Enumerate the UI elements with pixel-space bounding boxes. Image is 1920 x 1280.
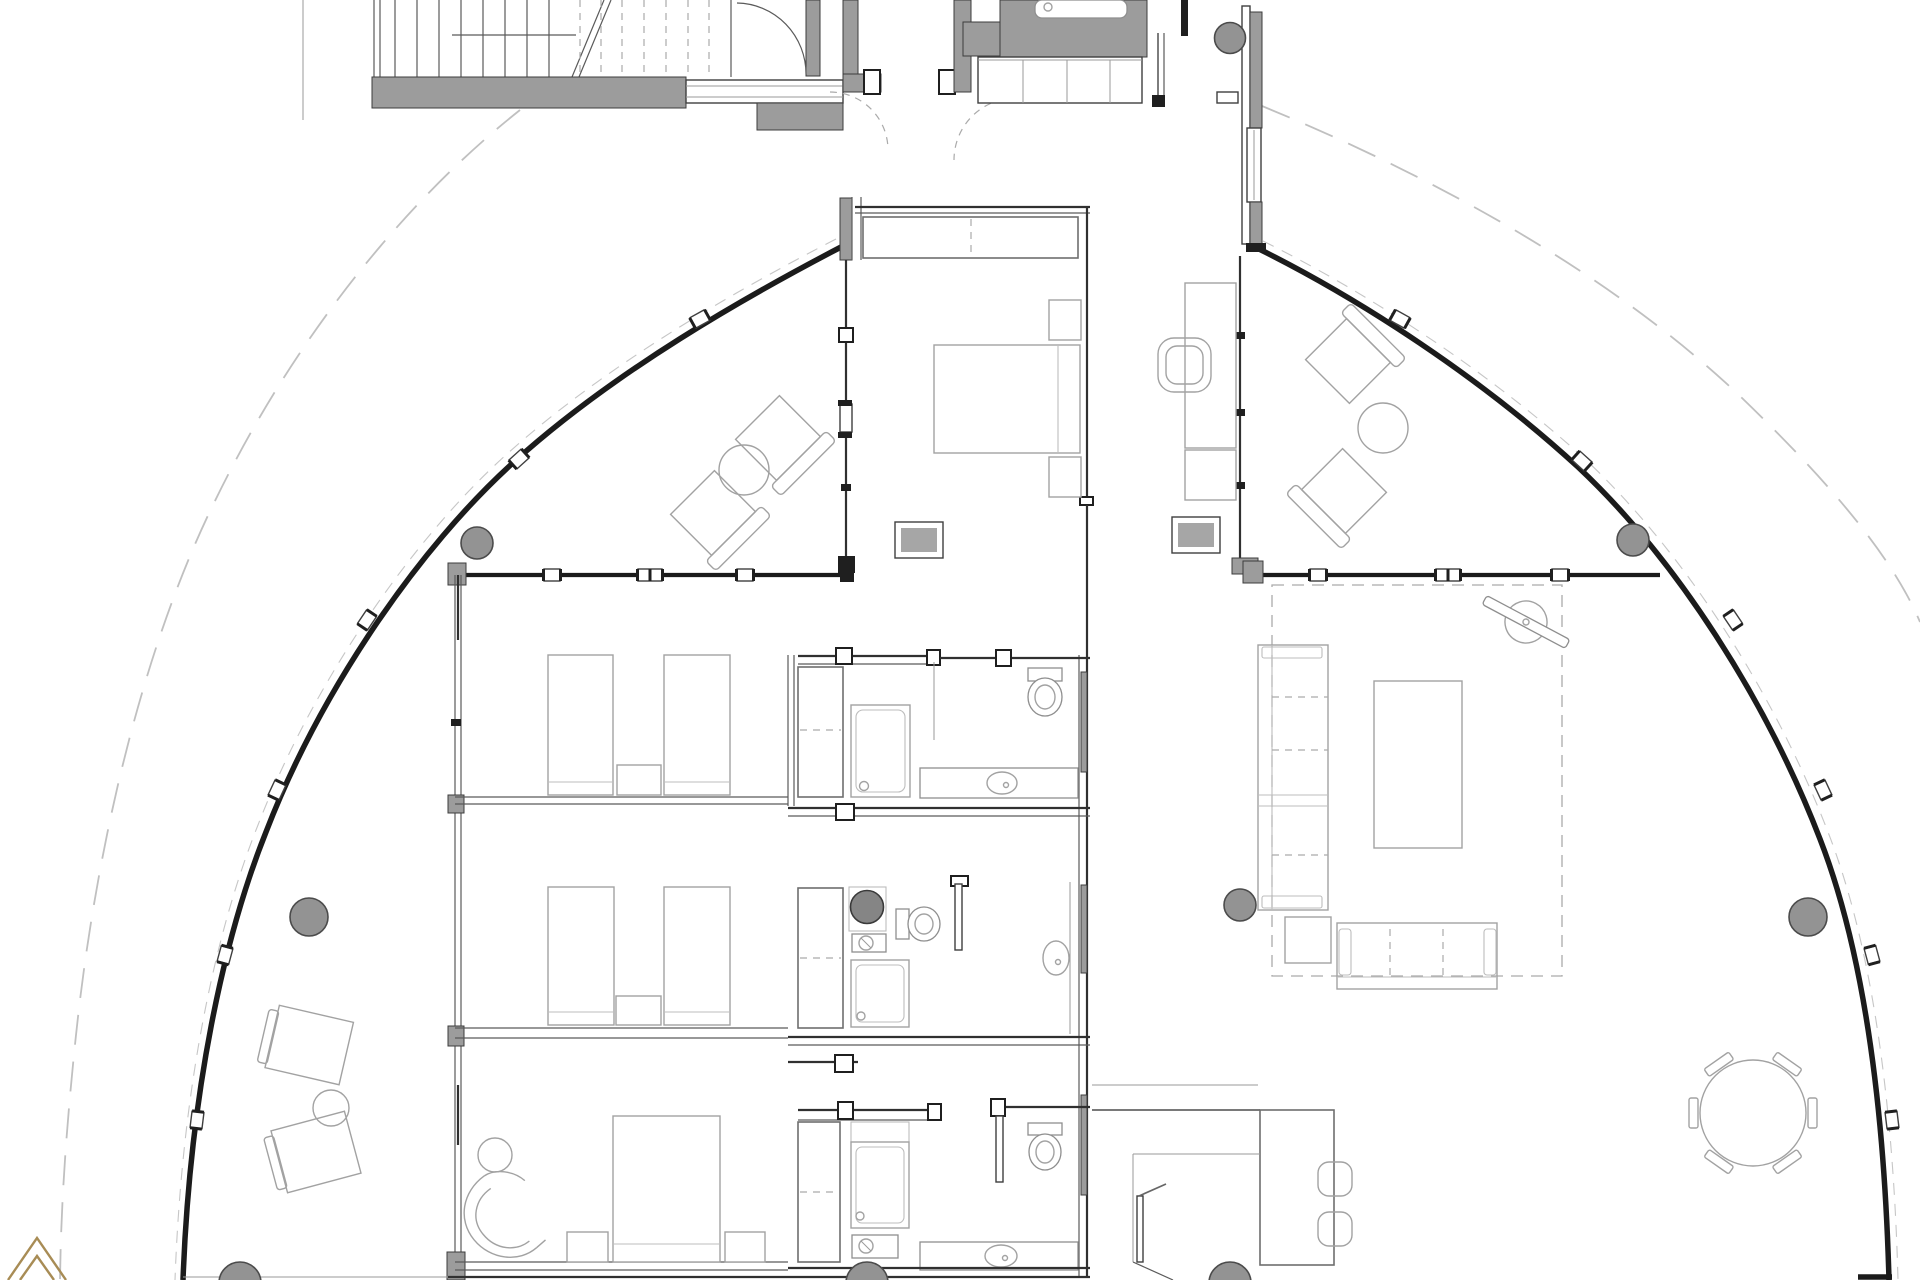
closet: [798, 667, 843, 797]
wall-tick: [841, 484, 851, 491]
column: [846, 1262, 888, 1280]
wall-tick: [451, 719, 461, 726]
wall-mullion-gap: [544, 569, 560, 581]
wall-end: [1152, 95, 1165, 107]
column: [1215, 23, 1246, 54]
shower-vestibule: [851, 1122, 909, 1142]
wall-mullion-tick: [636, 569, 639, 581]
stair-break-line: [579, 0, 611, 77]
facade-mullion: [1885, 1109, 1899, 1130]
armchair-seat: [1306, 319, 1391, 404]
wall-joint: [840, 566, 854, 582]
wall-tick: [838, 400, 852, 406]
floor-mat: [1178, 523, 1214, 547]
door-handle: [1217, 92, 1238, 103]
door-jamb: [996, 650, 1011, 666]
nightstand: [616, 996, 661, 1025]
column: [1617, 524, 1649, 556]
dining-table: [1700, 1060, 1806, 1166]
wall-end: [1246, 243, 1266, 252]
side-table: [478, 1138, 512, 1172]
double-bed: [613, 1116, 720, 1262]
terrace-chair-back: [264, 1135, 288, 1190]
vanity-basin: [1043, 941, 1069, 975]
terrace-chair: [256, 1003, 353, 1084]
column: [851, 891, 884, 924]
door-jamb: [836, 804, 854, 820]
vanity-counter: [920, 1242, 1078, 1270]
twin-bed: [548, 887, 614, 1025]
kitchen-counter: [1260, 1110, 1334, 1265]
wall-mullion-gap: [737, 569, 753, 581]
setback-dashed-arc-left: [60, 110, 520, 1280]
facade-mullion: [1813, 778, 1832, 801]
wall-mullion-tick: [752, 569, 755, 581]
shower-tray: [856, 1147, 904, 1223]
wall-mullion-tick: [649, 569, 652, 581]
wall-joint: [447, 1252, 465, 1280]
armchair-seat: [736, 396, 821, 481]
wall-mullion-tick: [542, 569, 545, 581]
wall-mullion-tick: [735, 569, 738, 581]
logo-chevron-inner: [20, 1256, 54, 1280]
wall-mullion-tick: [1567, 569, 1570, 581]
wall-mullion: [1308, 569, 1328, 581]
column: [461, 527, 493, 559]
column: [290, 898, 328, 936]
fan-blade: [1482, 596, 1570, 649]
wall-stub: [1181, 0, 1188, 36]
wall-mullion: [1550, 569, 1570, 581]
door-leaf: [806, 0, 820, 76]
nightstand: [567, 1232, 608, 1262]
coffee-table: [1374, 681, 1462, 848]
angled-wall: [1133, 1262, 1173, 1280]
terrace-chair: [262, 1111, 361, 1195]
toilet-tank: [1028, 1123, 1062, 1135]
shower-tray: [856, 710, 905, 792]
shower: [851, 1142, 909, 1228]
twin-bed: [664, 887, 730, 1025]
lounge-chair-outer: [453, 1173, 553, 1266]
facade-mullion-gap: [1885, 1111, 1899, 1128]
wall-mullion-gap: [1552, 569, 1568, 581]
core-wall: [757, 103, 843, 130]
basin-drain: [1056, 960, 1061, 965]
door-jamb: [838, 1102, 853, 1119]
armchair: [1286, 443, 1392, 549]
wall-mullion: [735, 569, 755, 581]
toilet-bowl: [1029, 1134, 1061, 1170]
wall-tick: [838, 432, 852, 438]
dining-chair-back: [1689, 1098, 1698, 1128]
armchair-back: [771, 431, 836, 496]
wall-poche: [1081, 672, 1087, 772]
stair-break-line: [572, 0, 604, 77]
column: [1224, 889, 1256, 921]
armchair-seat: [671, 471, 756, 556]
door-swing-dashed: [954, 98, 1016, 160]
sofa-horizontal: [1337, 923, 1497, 989]
side-table: [313, 1090, 349, 1126]
dining-chair-back: [1808, 1098, 1817, 1128]
wall-poche: [1081, 885, 1087, 973]
armchair: [665, 465, 771, 571]
core-wall: [843, 0, 858, 80]
column: [1789, 898, 1827, 936]
dining-chair: [1808, 1098, 1817, 1128]
dining-chair: [1689, 1098, 1698, 1128]
armchair-back: [1286, 484, 1351, 549]
facade-mullion: [267, 778, 286, 801]
wall-poche: [1250, 12, 1262, 128]
shower-drain: [860, 782, 869, 791]
toilet-bowl: [1028, 678, 1062, 716]
facade-mullion: [1864, 944, 1881, 966]
nightstand: [725, 1232, 765, 1262]
column: [1209, 1262, 1251, 1280]
door-jamb: [991, 1099, 1005, 1116]
facade-mullion: [190, 1109, 204, 1130]
sofa-arm: [1484, 929, 1496, 975]
side-table: [719, 445, 769, 495]
facade-outer-face-left: [175, 239, 836, 1280]
facade-wall-right: [1257, 248, 1889, 1280]
closet-row: [978, 57, 1142, 103]
wall-mullion-tick: [661, 569, 664, 581]
door-leaf: [955, 884, 962, 950]
wall-mullion: [542, 569, 562, 581]
wall-joint: [448, 1026, 464, 1046]
armchair: [730, 390, 836, 496]
facade-outer-face-right: [1263, 241, 1898, 1280]
shower-drain: [857, 1012, 865, 1020]
wall-mullion: [1434, 569, 1462, 581]
door-frame: [1137, 1196, 1143, 1262]
shower-drain: [856, 1212, 864, 1220]
toilet-bowl: [908, 907, 940, 941]
door-jamb: [928, 1104, 941, 1120]
nightstand: [1049, 300, 1081, 340]
armchair-seat: [1302, 449, 1387, 534]
nightstand: [1049, 457, 1081, 497]
cabinet: [1185, 450, 1236, 500]
shower: [851, 960, 909, 1027]
door-jamb: [836, 648, 852, 664]
wall-mullion-tick: [1434, 569, 1437, 581]
terrace-chair-seat: [271, 1111, 361, 1192]
corner-table: [1285, 917, 1331, 963]
floor-plan-page: [0, 0, 1920, 1280]
door-jamb: [839, 328, 853, 342]
wall-poche: [1250, 202, 1262, 246]
toilet-tank: [896, 909, 909, 939]
side-table: [1358, 403, 1408, 453]
door-jamb: [864, 70, 880, 94]
sofa-module: [1258, 645, 1328, 910]
setback-dashed-arc-right: [1262, 106, 1920, 622]
core-wall: [963, 22, 1000, 56]
wall-mullion-tick: [559, 569, 562, 581]
window-band: [686, 80, 843, 103]
twin-bed: [548, 655, 613, 795]
door-leaf: [996, 1116, 1003, 1182]
facade-mullion: [1571, 450, 1594, 472]
armchair-back: [706, 506, 771, 571]
terrace-chair-back: [257, 1009, 279, 1064]
floor-mat: [901, 528, 937, 552]
sofa-arm: [1339, 929, 1351, 975]
stair-landing-wall: [372, 77, 686, 108]
door-leaf-angled: [1139, 1184, 1166, 1196]
wall-mullion-tick: [1447, 569, 1450, 581]
door-swing-arc: [737, 3, 806, 74]
nightstand: [617, 765, 661, 795]
logo-chevron-outer: [8, 1238, 66, 1280]
wall-mullion-tick: [1308, 569, 1311, 581]
sofa-arm: [1262, 647, 1322, 658]
lounge-chair: [453, 1163, 562, 1269]
facade-mullion: [1722, 608, 1743, 631]
facade-wall-left: [183, 246, 843, 1280]
wall-poche: [840, 198, 852, 260]
door-jamb: [835, 1055, 853, 1072]
door-jamb: [1080, 497, 1093, 505]
floor-plan-drawing: [0, 0, 1920, 1280]
wall-joint: [1243, 561, 1263, 583]
wall-mullion: [636, 569, 664, 581]
wall-mullion-gap: [1310, 569, 1326, 581]
wall-mullion-tick: [1325, 569, 1328, 581]
facade-mullion-gap: [190, 1111, 204, 1128]
lounge-chair-arm: [537, 1238, 546, 1249]
wall-mullion-tick: [1459, 569, 1462, 581]
wall-poche: [1081, 1095, 1087, 1195]
sofa-arm: [1262, 896, 1322, 908]
facade-mullion: [688, 309, 711, 329]
twin-bed: [664, 655, 730, 795]
window-break: [840, 404, 852, 432]
wall-mullion-tick: [1550, 569, 1553, 581]
door-jamb: [939, 70, 955, 94]
column: [219, 1262, 261, 1280]
